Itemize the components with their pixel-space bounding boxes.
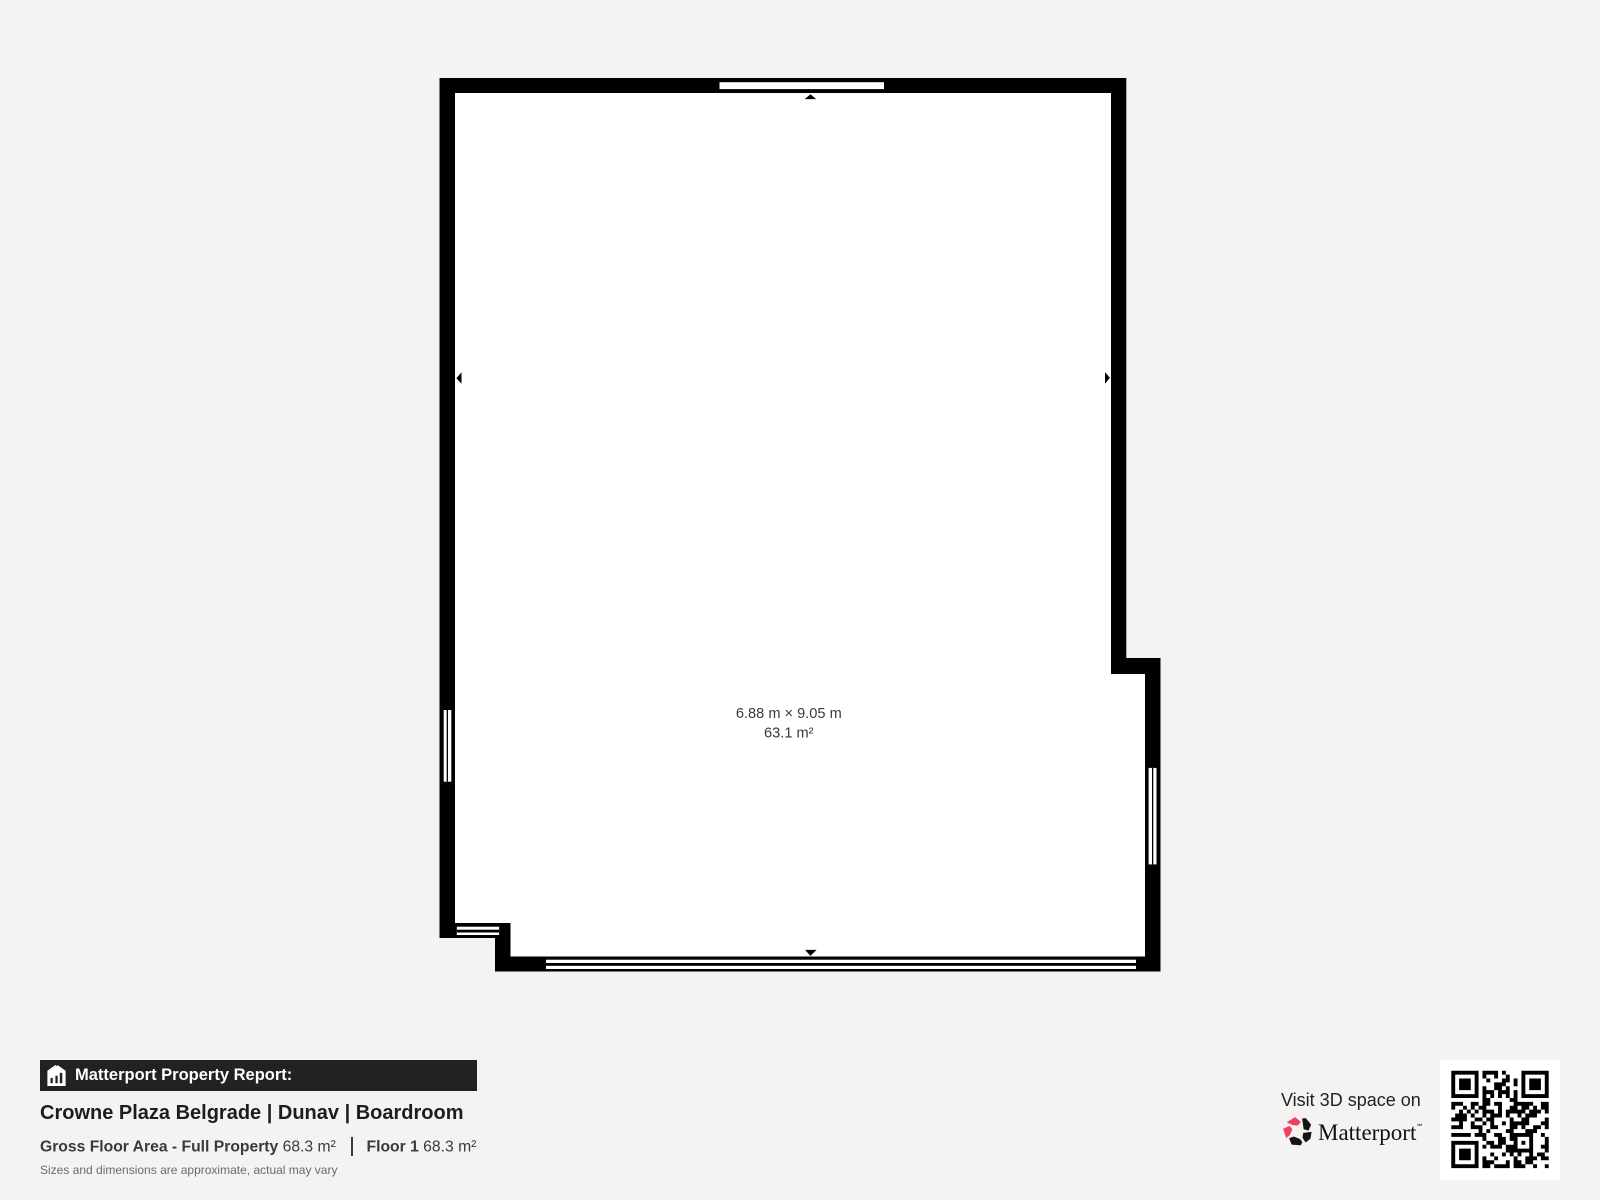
svg-text:6.88 m × 9.05 m: 6.88 m × 9.05 m bbox=[736, 706, 842, 722]
svg-text:63.1 m²: 63.1 m² bbox=[764, 726, 814, 742]
